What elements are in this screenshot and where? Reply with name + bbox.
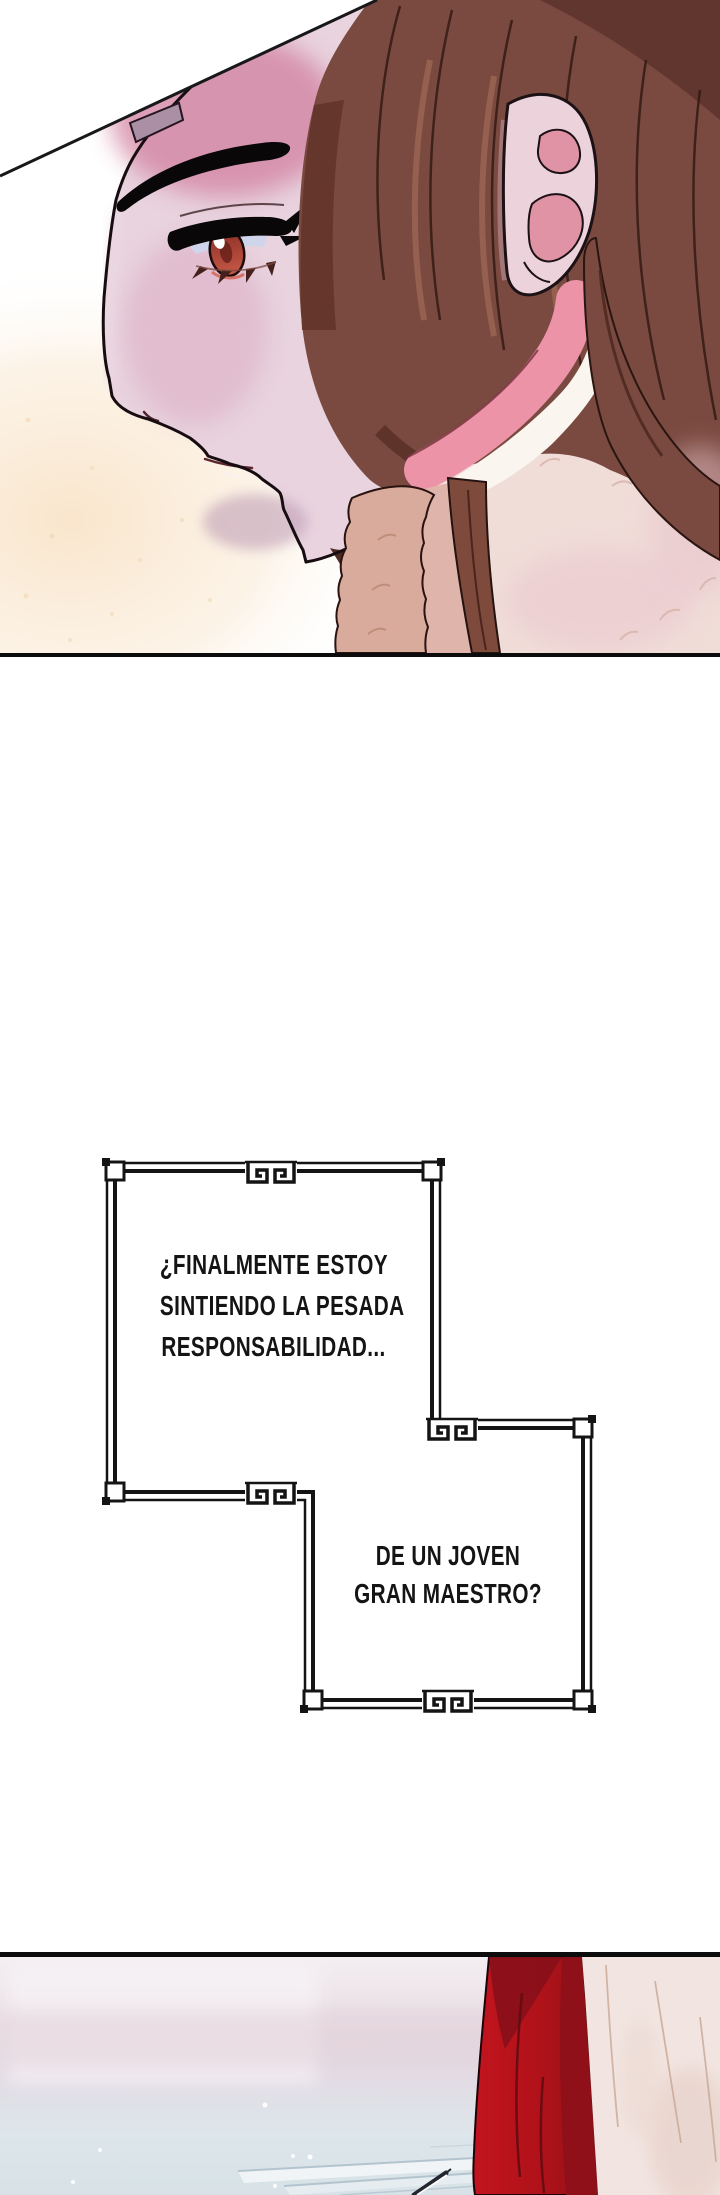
- speech-line: ¿FINALMENTE ESTOY: [160, 1244, 387, 1285]
- speech-line: GRAN MAESTRO?: [352, 1575, 544, 1613]
- red-drape: [473, 1957, 598, 2195]
- panel-bottom-room: [0, 1952, 720, 2195]
- panel-top-artwork: [0, 0, 720, 653]
- wall-pink-band: [0, 2009, 540, 2069]
- speech-line: DE UN JOVEN: [352, 1537, 544, 1575]
- greek-key-ornament: [245, 1162, 297, 1184]
- greek-key-ornament: [245, 1483, 297, 1505]
- cream-curtain: [582, 1957, 720, 2195]
- panel-bottom-artwork: [0, 1957, 720, 2195]
- webtoon-page: ¿FINALMENTE ESTOY SINTIENDO LA PESADA RE…: [0, 0, 720, 2195]
- speech-line: SINTIENDO LA PESADA: [160, 1285, 387, 1326]
- chin-shadow: [203, 494, 307, 550]
- speech-line: RESPONSABILIDAD...: [160, 1326, 387, 1367]
- ornate-speech-box: [100, 1150, 600, 1720]
- fur-trimmed-band: [335, 486, 434, 653]
- greek-key-ornament: [426, 1419, 478, 1441]
- greek-key-ornament: [422, 1691, 474, 1713]
- speech-text-upper: ¿FINALMENTE ESTOY SINTIENDO LA PESADA RE…: [160, 1244, 387, 1367]
- panel-top-closeup: [0, 0, 720, 657]
- speech-text-lower: DE UN JOVEN GRAN MAESTRO?: [352, 1537, 544, 1613]
